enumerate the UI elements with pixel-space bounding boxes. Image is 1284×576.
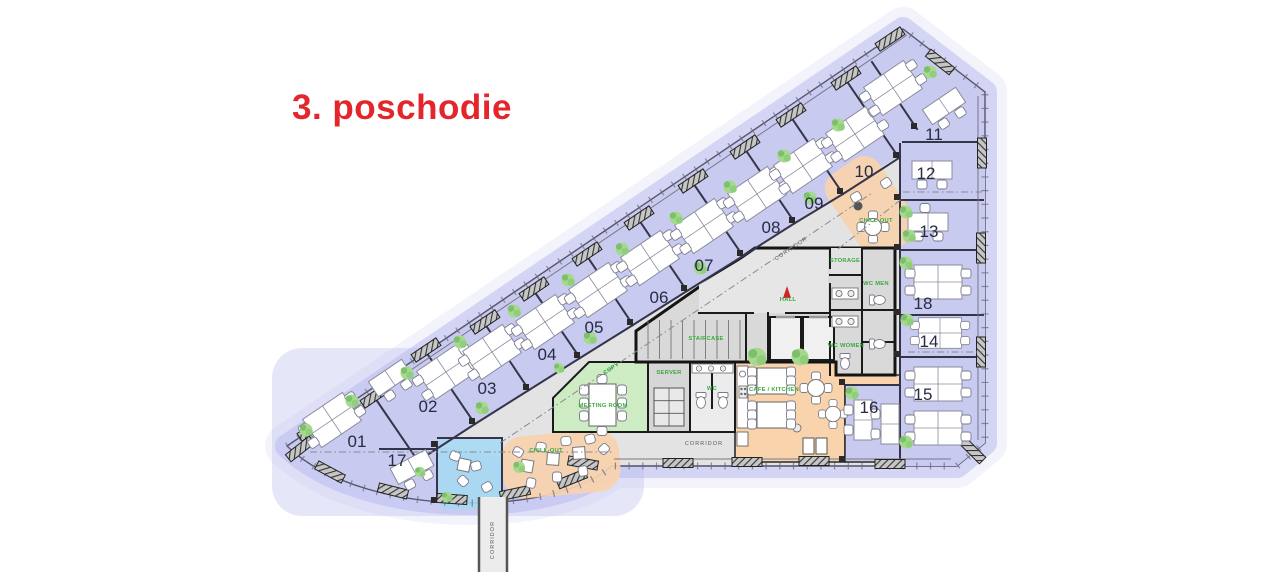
room-label-15: 15 (914, 385, 933, 404)
storage-label: STORAGE (830, 258, 860, 264)
floor-plan-page: 3. poschodie (0, 0, 1284, 576)
chill-out-bottom-label: CHILL-OUT (529, 448, 563, 454)
room-label-14: 14 (920, 332, 939, 351)
room-label-16: 16 (860, 398, 879, 417)
room-label-06: 06 (650, 288, 669, 307)
server-label: SERVER (656, 370, 682, 376)
wc-men-label: WC MEN (863, 281, 889, 287)
meeting-room-label: MEETING ROOM (578, 403, 627, 409)
room-label-18: 18 (914, 294, 933, 313)
wc-women-label: WC WOMEN (828, 343, 864, 349)
room-label-09: 09 (805, 194, 824, 213)
hall-label: HALL (780, 297, 797, 303)
floor-plan: 01 02 03 04 05 06 07 08 09 10 11 12 13 1… (0, 0, 1284, 576)
cafe-kitchen-label: CAFE / KITCHEN (749, 387, 799, 393)
server-racks (654, 388, 684, 426)
room-label-10: 10 (855, 162, 874, 181)
corridor-bottom-label: CORRIDOR (685, 441, 723, 447)
corridor-stub-label: CORRIDOR (490, 521, 496, 559)
room-label-05: 05 (585, 318, 604, 337)
room-label-04: 04 (538, 345, 557, 364)
wc-small-label: WC (707, 386, 718, 392)
chill-out-top-label: CHILL-OUT (859, 218, 893, 224)
room-label-08: 08 (762, 218, 781, 237)
staircase-label: STAIRCASE (688, 336, 723, 342)
room-label-13: 13 (920, 222, 939, 241)
room-label-12: 12 (917, 164, 936, 183)
room-label-17: 17 (388, 451, 407, 470)
room-label-02: 02 (419, 397, 438, 416)
room-label-01: 01 (348, 432, 367, 451)
room-label-03: 03 (478, 379, 497, 398)
room-label-11: 11 (925, 125, 943, 144)
room-label-07: 07 (695, 256, 714, 275)
